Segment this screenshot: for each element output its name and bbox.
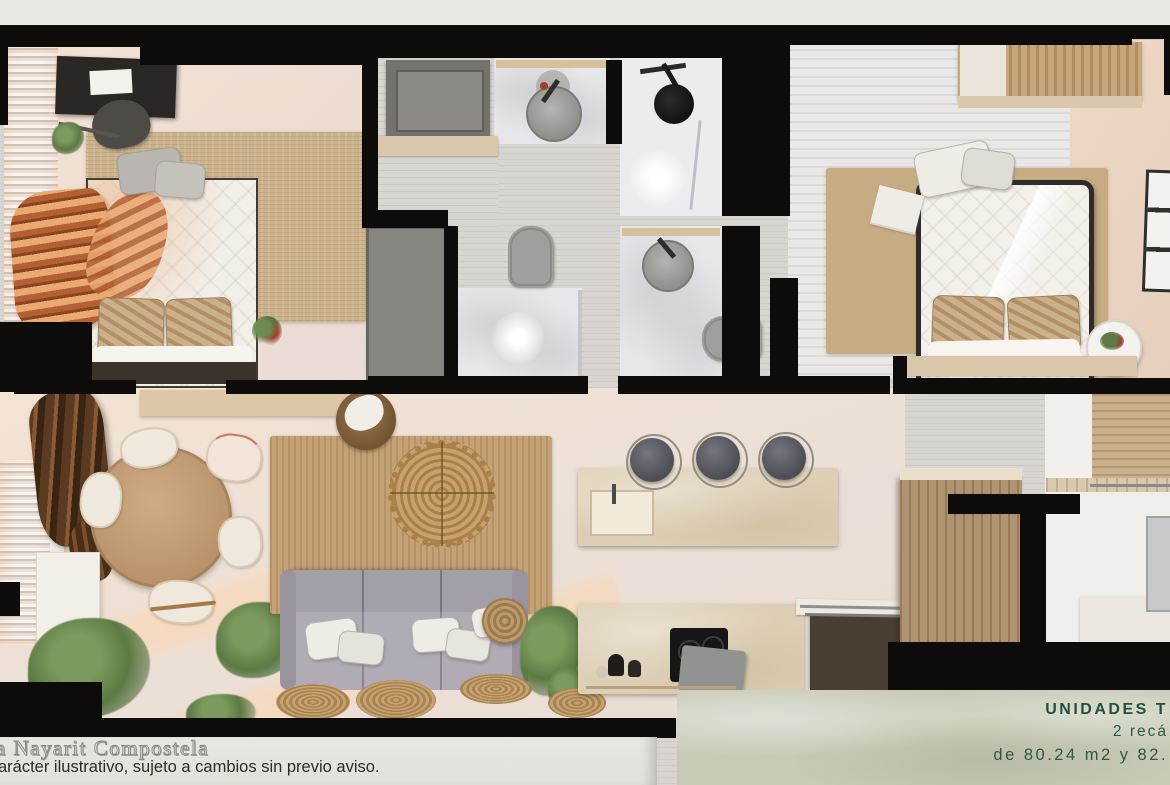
- unit-info-box: UNIDADES T 2 recá de 80.24 m2 y 82.: [677, 690, 1170, 785]
- side-table-plant: [1100, 332, 1124, 350]
- disclaimer-text: arácter ilustrativo, sujeto a cambios si…: [0, 758, 380, 777]
- bed1-flowers: [252, 316, 282, 346]
- wall-segment: [948, 494, 1080, 514]
- bar-stool: [762, 436, 806, 480]
- wall-segment: [1164, 25, 1170, 95]
- unit-info-title: UNIDADES T: [677, 701, 1168, 719]
- bathroom1-counter-band: [496, 60, 608, 68]
- wall-segment: [606, 60, 622, 144]
- small-jute-rug: [460, 674, 532, 704]
- shower1-head: [654, 84, 694, 124]
- bedroom2-window: [1142, 169, 1170, 292]
- wall-segment: [906, 378, 1170, 394]
- rattan-decor-spoke: [441, 442, 443, 546]
- wall-segment: [362, 210, 448, 228]
- bedroom2-bench: [905, 356, 1137, 376]
- wall-segment: [444, 226, 458, 382]
- pantry-counter-top: [900, 468, 1022, 480]
- shower2-light-spot: [492, 312, 544, 364]
- small-jute-rug: [276, 684, 350, 720]
- toilet1: [508, 226, 554, 288]
- bathroom2-counter-band: [622, 228, 720, 236]
- washer-dryer-door: [396, 70, 484, 132]
- wall-segment: [722, 40, 790, 216]
- kitchen-jar: [628, 660, 641, 677]
- wall-segment: [226, 380, 368, 394]
- wall-segment: [618, 376, 890, 394]
- wall-segment: [722, 226, 760, 386]
- wall-segment: [14, 380, 136, 394]
- sofa-pillow: [336, 630, 385, 667]
- unit-info-sizes: de 80.24 m2 y 82.: [677, 746, 1168, 765]
- unit-info-bedrooms: 2 recá: [677, 723, 1168, 741]
- hall-cabinet: [366, 226, 452, 384]
- kitchen-jar: [608, 654, 624, 676]
- small-jute-rug: [356, 680, 436, 720]
- bedroom2-closet-front: [958, 96, 1142, 108]
- wall-segment: [140, 25, 370, 65]
- wall-segment: [0, 25, 8, 125]
- wall-segment: [770, 278, 798, 394]
- wall-segment: [0, 718, 676, 738]
- wall-segment: [790, 25, 1132, 45]
- counter-rail: [586, 686, 736, 689]
- bedroom2-closet-shelf: [960, 44, 1006, 96]
- wall-segment: [893, 356, 907, 394]
- wall-segment: [362, 46, 378, 218]
- bathroom1-cup: [540, 82, 548, 90]
- kitchen-bowl: [596, 666, 608, 678]
- bathroom1-sink: [526, 86, 582, 142]
- bar-stool: [696, 436, 740, 480]
- entry-counter-rod: [1090, 484, 1170, 487]
- sofa-armrest: [280, 570, 296, 690]
- wall-segment: [0, 582, 20, 616]
- entry-window: [1146, 516, 1170, 612]
- slide-canvas: a Nayarit Compostela arácter ilustrativo…: [0, 0, 1170, 785]
- entry-wood-panel: [1092, 394, 1170, 482]
- shower2-glass: [578, 290, 582, 382]
- shower1-light-spot: [630, 150, 686, 206]
- bar-stool: [630, 438, 674, 482]
- bed2-top-pillow: [960, 147, 1017, 192]
- bed1-top-pillow: [154, 160, 207, 200]
- wall-segment: [368, 376, 588, 394]
- island-sink: [590, 490, 654, 536]
- island-faucet: [612, 484, 616, 504]
- desk-paper: [89, 69, 132, 95]
- utility-counter: [366, 136, 498, 156]
